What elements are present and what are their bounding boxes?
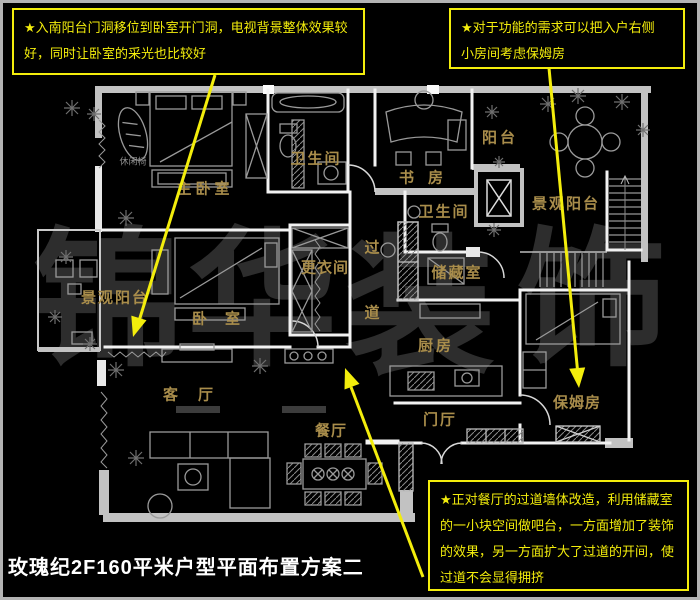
note-top-left: ★入南阳台门洞移位到卧室开门洞，电视背景整体效果较好，同时让卧室的采光也比较好 [12,8,365,75]
note-bottom-right: ★正对餐厅的过道墙体改造，利用储藏室的一小块空间做吧台，一方面增加了装饰的效果，… [428,480,689,591]
floorplan-page: 锦华装饰 [0,0,700,600]
note-top-right: ★对于功能的需求可以把入户右侧小房间考虑保姆房 [449,8,685,69]
note-line: ★对于功能的需求可以把入户右侧 [461,15,673,41]
page-title: 玫瑰纪2F160平米户型平面布置方案二 [8,551,364,580]
note-line: ★入南阳台门洞移位到卧室开门洞，电视背景整体效果较 [24,15,353,41]
arrow-to-nanny-room [549,68,585,388]
arrow-to-bedroom [131,75,215,337]
note-line: 小房间考虑保姆房 [461,41,673,67]
arrow-to-corridor [345,368,424,577]
note-line: ★正对餐厅的过道墙体改造，利用储藏室 [440,487,677,513]
note-line: 的一小块空间做吧台，一方面增加了装饰 [440,513,677,539]
note-line: 好，同时让卧室的采光也比较好 [24,41,353,67]
note-line: 过道不会显得拥挤 [440,565,677,591]
note-line: 的效果，另一方面扩大了过道的开间，使 [440,539,677,565]
